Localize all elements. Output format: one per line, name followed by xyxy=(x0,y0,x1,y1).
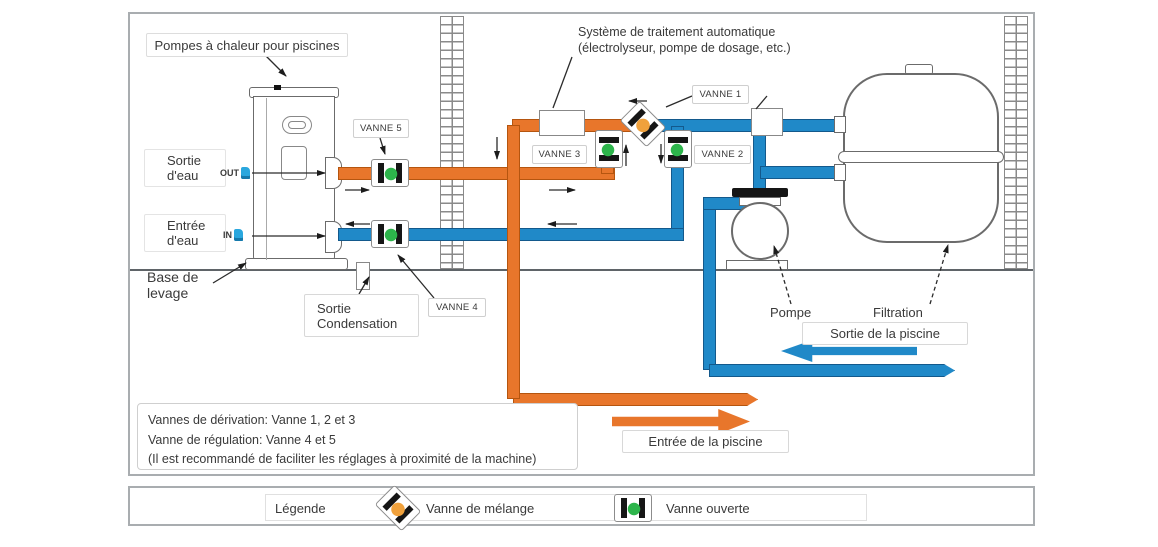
water-outlet-line-1: Sortie xyxy=(167,153,201,168)
treatment-line-1: Système de traitement automatique xyxy=(578,25,838,41)
heat-pump-lifting-base xyxy=(245,258,348,270)
valve-3-label-text: VANNE 3 xyxy=(538,149,580,160)
pump-label-text: Pompe xyxy=(770,305,811,320)
pipe-cold-filter-inlet xyxy=(760,166,840,179)
notes-line-1: Vannes de dérivation: Vanne 1, 2 et 3 xyxy=(148,411,536,431)
label-water-inlet: Entrée d'eau xyxy=(144,214,226,252)
water-tap-icon xyxy=(234,229,243,241)
out-port-text: OUT xyxy=(220,168,239,178)
pipe-cold-fitting-drop xyxy=(753,130,766,192)
legend-title-text: Légende xyxy=(275,501,326,516)
water-inlet-text: Entrée d'eau xyxy=(167,218,205,248)
in-port-text: IN xyxy=(223,230,232,240)
filter-flange-band xyxy=(838,151,1004,163)
label-treatment-system: Système de traitement automatique (élect… xyxy=(578,25,838,56)
heat-pump-seam xyxy=(266,98,267,260)
pipe-cold-suction-vertical xyxy=(703,198,716,370)
water-inlet-line-1: Entrée xyxy=(167,218,205,233)
valve-3-open-icon xyxy=(595,130,623,168)
treatment-line-2: (électrolyseur, pompe de dosage, etc.) xyxy=(578,41,838,57)
heat-pump-label-text: Pompes à chaleur pour piscines xyxy=(155,38,340,53)
water-inlet-line-2: d'eau xyxy=(167,233,205,248)
condensation-drain xyxy=(356,262,370,290)
legend-mixing-valve-label: Vanne de mélange xyxy=(426,501,534,516)
legend-open-valve-label: Vanne ouverte xyxy=(666,501,750,516)
label-valve-3: VANNE 3 xyxy=(532,145,587,164)
notes-text: Vannes de dérivation: Vanne 1, 2 et 3 Va… xyxy=(148,411,536,470)
pump-lid xyxy=(732,188,788,197)
water-outlet-line-2: d'eau xyxy=(167,168,201,183)
water-tap-icon xyxy=(241,167,250,179)
legend-inner-box xyxy=(265,494,867,521)
legend-open-valve-text: Vanne ouverte xyxy=(666,501,750,516)
pool-outlet-text: Sortie de la piscine xyxy=(830,326,940,341)
label-valve-4: VANNE 4 xyxy=(428,298,486,317)
legend-open-valve-icon xyxy=(614,494,652,522)
notes-box: Vannes de dérivation: Vanne 1, 2 et 3 Va… xyxy=(137,403,578,470)
condensation-text: Sortie Condensation xyxy=(317,301,397,331)
condensation-line-1: Sortie xyxy=(317,301,397,316)
pool-inlet-text: Entrée de la piscine xyxy=(648,434,762,449)
label-heat-pump: Pompes à chaleur pour piscines xyxy=(146,33,348,57)
filtration-label-text: Filtration xyxy=(873,305,923,320)
label-water-outlet: Sortie d'eau xyxy=(144,149,226,187)
heat-pump-lid-chip xyxy=(274,85,281,90)
treatment-system-box xyxy=(539,110,585,136)
installation-diagram: Pompes à chaleur pour piscines Système d… xyxy=(0,0,1158,547)
filter-port-bottom xyxy=(834,164,846,181)
lifting-base-line-1: Base de xyxy=(147,269,198,285)
pump-pedestal xyxy=(726,260,788,270)
valve-2-label-text: VANNE 2 xyxy=(701,149,743,160)
pipe-cold-pool-return xyxy=(709,364,955,377)
label-valve-1: VANNE 1 xyxy=(692,85,749,104)
notes-line-3: (Il est recommandé de faciliter les régl… xyxy=(148,450,536,470)
notes-line-2: Vanne de régulation: Vanne 4 et 5 xyxy=(148,431,536,451)
out-port-tag: OUT xyxy=(220,167,250,179)
pipe-hot-return-vertical xyxy=(507,125,520,399)
lifting-base-line-2: levage xyxy=(147,285,198,301)
heat-pump-panel xyxy=(281,146,307,180)
valve-1-label-text: VANNE 1 xyxy=(699,89,741,100)
filter-stand xyxy=(838,246,1004,269)
valve-4-label-text: VANNE 4 xyxy=(436,302,478,313)
label-pump: Pompe xyxy=(770,305,811,320)
label-valve-2: VANNE 2 xyxy=(694,145,751,164)
pump-body xyxy=(731,202,789,260)
label-pool-outlet: Sortie de la piscine xyxy=(802,322,968,345)
label-lifting-base: Base de levage xyxy=(147,269,198,301)
valve-5-label-text: VANNE 5 xyxy=(360,123,402,134)
heat-pump-vent-slot xyxy=(288,121,306,129)
filter-port-top xyxy=(834,116,846,133)
label-pool-inlet: Entrée de la piscine xyxy=(622,430,789,453)
valve-5-open-icon xyxy=(371,159,409,187)
water-outlet-text: Sortie d'eau xyxy=(167,153,201,183)
in-port-tag: IN xyxy=(223,229,243,241)
label-filtration: Filtration xyxy=(873,305,923,320)
valve-4-open-icon xyxy=(371,220,409,248)
label-valve-5: VANNE 5 xyxy=(353,119,409,138)
legend-mixing-valve-text: Vanne de mélange xyxy=(426,501,534,516)
brick-wall-right xyxy=(1004,16,1028,269)
check-valve-fitting xyxy=(751,108,783,136)
valve-2-open-icon xyxy=(664,130,692,168)
legend-title: Légende xyxy=(275,501,326,516)
label-condensation: Sortie Condensation xyxy=(304,294,419,337)
condensation-line-2: Condensation xyxy=(317,316,397,331)
